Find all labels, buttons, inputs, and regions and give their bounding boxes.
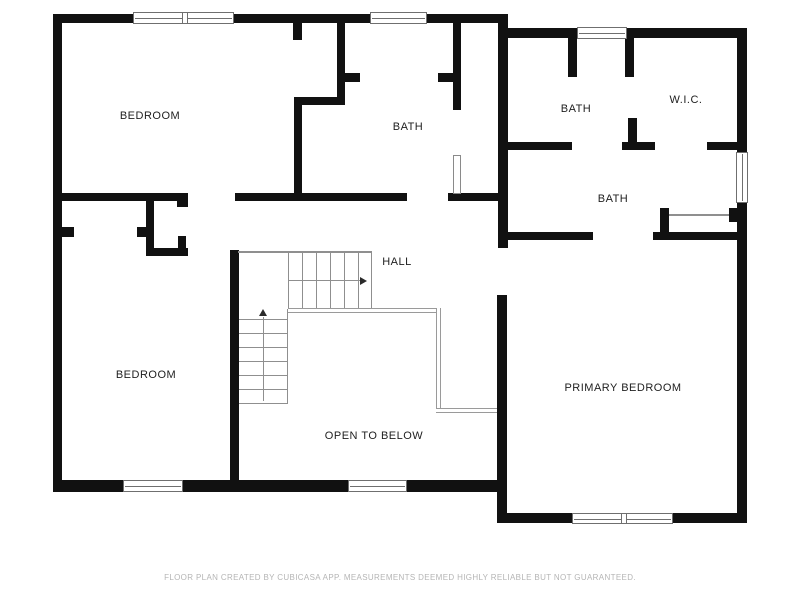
room-label-open-to-below: OPEN TO BELOW: [325, 430, 423, 442]
wall-bath-wic-divider-low: [628, 118, 637, 144]
wall-bathcloset-stub-l: [660, 208, 669, 240]
wall-hall-top-a: [53, 193, 188, 201]
stair-arrow-up-icon: [259, 309, 267, 316]
wall-hall-jamb: [177, 201, 188, 207]
wall-central-upper: [498, 14, 508, 248]
room-label-primary-bedroom: PRIMARY BEDROOM: [564, 382, 681, 394]
stair-lower-end-line: [239, 403, 287, 404]
wall-right-exterior: [737, 28, 747, 523]
wall-trbath-shower-stub: [568, 36, 577, 77]
stair-tread: [344, 253, 345, 309]
floor-plan: BEDROOM BATH BATH W.I.C. BATH HALL BEDRO…: [0, 0, 800, 600]
stair-arrow-right-icon: [360, 277, 367, 285]
wall-tub-stub-right: [438, 73, 453, 82]
room-label-bedroom-bottom-left: BEDROOM: [116, 369, 176, 381]
wall-midbath-bottom-a: [500, 232, 593, 240]
bathcloset-door-line: [669, 214, 729, 216]
wall-stair: [230, 250, 239, 485]
stair-upper-top-line: [238, 251, 372, 253]
wall-hall-top-b: [235, 193, 407, 201]
stair-tread: [358, 253, 359, 309]
wall-bath-wic-divider-up: [625, 36, 634, 77]
wall-trbath-bottom-c: [707, 142, 747, 150]
window-openbelow-bottom: [348, 480, 407, 492]
window-bedroom2-bottom: [123, 480, 183, 492]
wall-bath-mid-right: [453, 23, 461, 110]
wall-hall-top-c: [448, 193, 498, 201]
openbelow-line-bottom: [436, 408, 497, 413]
stair-upper-right-line: [371, 251, 372, 309]
wall-bedroom2-door-stub-l: [62, 227, 74, 237]
window-trbath-top: [577, 27, 627, 39]
window-right-wall: [736, 152, 748, 203]
wall-bottom-left-section: [53, 480, 507, 492]
wall-left-exterior: [53, 14, 62, 492]
window-bathmid-top: [370, 12, 427, 24]
window-bedroom1-top: [133, 12, 234, 24]
wall-closet2-jamb: [178, 236, 186, 248]
room-label-bath-right: BATH: [598, 193, 629, 205]
wall-bathcloset-stub-r: [729, 208, 738, 222]
openbelow-line-side: [436, 308, 441, 410]
wall-trbath-bottom-a: [500, 142, 572, 150]
openbelow-line-top: [288, 308, 439, 313]
stair-direction-line-upper: [288, 280, 360, 281]
stair-tread: [302, 253, 303, 309]
wall-bath-mid-left: [337, 23, 345, 105]
room-label-hall: HALL: [382, 256, 412, 268]
wall-top-left-section: [53, 14, 508, 23]
footer-disclaimer: FLOOR PLAN CREATED BY CUBICASA APP. MEAS…: [0, 573, 800, 582]
room-label-bath-top-right: BATH: [561, 103, 592, 115]
stair-tread: [288, 253, 289, 309]
window-primary-bottom: [572, 513, 673, 524]
wall-tub-stub-left: [345, 73, 360, 82]
wall-bedroom1-closet-stub: [293, 23, 302, 40]
wall-bedroom2-door-stub-r: [137, 227, 146, 237]
wall-closet2-bottom: [146, 248, 188, 256]
stair-lower-right-line: [287, 309, 288, 404]
room-label-wic: W.I.C.: [670, 94, 703, 106]
wall-bedroom1-right: [294, 97, 302, 200]
stair-tread: [316, 253, 317, 309]
room-label-bedroom-top-left: BEDROOM: [120, 110, 180, 122]
bath-door-leaf: [453, 155, 461, 194]
stair-direction-line-lower: [263, 317, 264, 401]
wall-trbath-bottom-b: [622, 142, 655, 150]
wall-central-lower: [497, 295, 507, 520]
room-label-bath-middle: BATH: [393, 121, 424, 133]
stair-tread: [330, 253, 331, 309]
